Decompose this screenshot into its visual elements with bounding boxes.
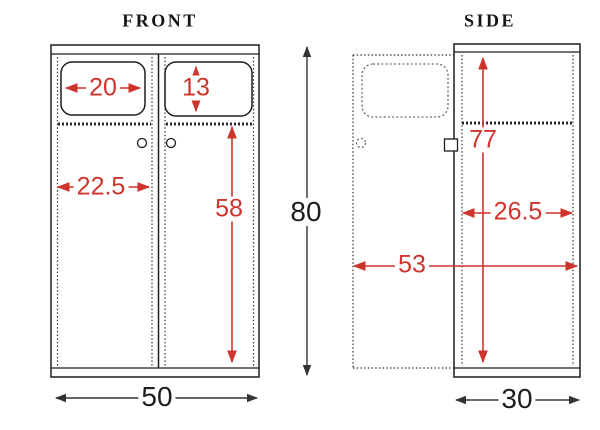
front-window-width-label: 20 [86,76,120,101]
side-view-title: SIDE [464,11,516,32]
left-door-knob [138,139,147,148]
dimension-diagram: FRONT SIDE 20 13 22.5 58 80 50 77 26.5 5… [0,0,600,430]
side-open-door-depth-label: 53 [395,253,429,278]
door-latch-square [445,139,458,151]
front-overall-height-label: 80 [287,198,324,226]
open-door-knob-dotted [357,139,366,148]
front-view-title: FRONT [122,11,198,32]
front-door-height-label: 58 [212,197,246,222]
front-window-height-label: 13 [179,76,213,101]
side-body-depth-label: 26.5 [491,200,546,225]
side-view-drawing [353,44,580,377]
front-door-width-label: 22.5 [74,175,129,200]
side-overall-depth-label: 30 [498,385,535,413]
open-door-window-dotted [362,64,448,117]
right-door-knob [167,139,176,148]
front-overall-width-label: 50 [138,383,175,411]
side-body-height-label: 77 [466,128,500,153]
